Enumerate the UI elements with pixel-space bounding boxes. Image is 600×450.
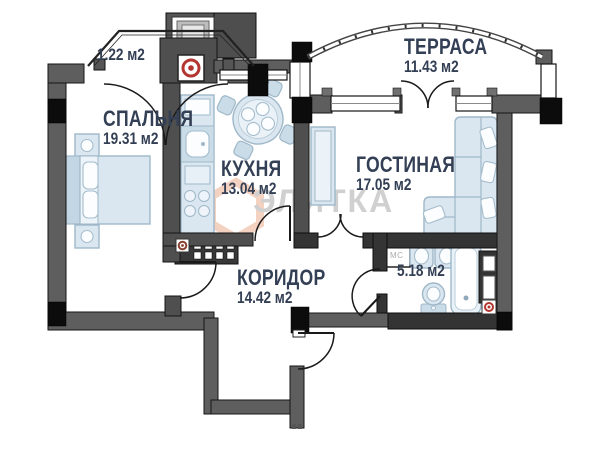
corner-block xyxy=(292,42,312,62)
door-post xyxy=(223,59,234,70)
terrace-door-arc xyxy=(428,81,454,108)
corridor-area: 14.42 м2 xyxy=(237,289,325,307)
bathtub xyxy=(451,243,481,315)
window-tab xyxy=(393,88,401,96)
corner-block xyxy=(48,302,66,326)
vent-icon xyxy=(178,55,204,81)
floor-plan-page: ЭЛИТКА xyxy=(0,0,600,450)
bedroom-name: СПАЛЬНЯ xyxy=(103,108,193,129)
entrance-door-arc xyxy=(298,333,334,369)
corner-block xyxy=(48,99,66,123)
wall-vestibule-east xyxy=(290,366,304,428)
kitchen-area: 13.04 м2 xyxy=(221,180,281,198)
floor-plan-drawing: ЭЛИТКА xyxy=(0,0,600,450)
terrace-label: ТЕРРАСА 11.43 м2 xyxy=(404,36,487,76)
balcony-label: 1.22 м2 xyxy=(97,45,145,64)
wall xyxy=(48,64,84,83)
nightstand-bottom xyxy=(75,225,99,248)
kitchen-name: КУХНЯ xyxy=(221,158,281,179)
wall-vestibule-south xyxy=(211,400,301,414)
terrace-door-arc xyxy=(401,81,428,108)
terrace-area: 11.43 м2 xyxy=(404,58,487,76)
window-tab xyxy=(487,88,497,96)
terrace-name: ТЕРРАСА xyxy=(404,36,487,57)
balcony-area: 1.22 м2 xyxy=(97,46,145,64)
bath-door-arc xyxy=(352,269,380,316)
entrance-threshold xyxy=(292,424,296,429)
corridor-name: КОРИДОР xyxy=(237,267,325,288)
towel-rail xyxy=(479,251,499,303)
window-tab xyxy=(322,88,332,96)
living-name: ГОСТИНАЯ xyxy=(356,154,455,175)
wall xyxy=(492,95,543,113)
sofa-pillow xyxy=(480,197,496,219)
wall-bath-west xyxy=(373,233,387,271)
nightstand-top xyxy=(75,134,99,157)
kitchen-label: КУХНЯ 13.04 м2 xyxy=(221,158,281,198)
pillow xyxy=(83,191,98,218)
wall-bath-bottom xyxy=(388,313,512,329)
bathroom-label: 5.18 м2 xyxy=(397,261,445,280)
entrance-threshold xyxy=(298,424,302,429)
bed xyxy=(66,156,150,224)
corridor-label: КОРИДОР 14.42 м2 xyxy=(237,267,325,307)
wall xyxy=(165,296,181,316)
vent-icon xyxy=(482,300,496,314)
bathroom-area: 5.18 м2 xyxy=(397,262,445,280)
entrance-pier xyxy=(291,307,309,333)
corner-block xyxy=(497,312,512,330)
window-tab xyxy=(452,88,460,96)
corner-block xyxy=(292,97,312,123)
window xyxy=(541,64,556,98)
wardrobe xyxy=(311,127,335,205)
pillow xyxy=(83,162,98,189)
washing-machine-label: МС xyxy=(390,251,403,260)
bedroom-door-arc xyxy=(180,262,216,298)
toilet xyxy=(421,283,446,316)
vent-icon xyxy=(176,239,189,252)
bedroom-label: СПАЛЬНЯ 19.31 м2 xyxy=(103,108,193,148)
living-label: ГОСТИНАЯ 17.05 м2 xyxy=(356,154,455,194)
living-area: 17.05 м2 xyxy=(356,176,455,194)
wall-bottom xyxy=(48,312,214,330)
corner-block xyxy=(248,64,268,96)
bedroom-area: 19.31 м2 xyxy=(103,130,193,148)
wall xyxy=(294,233,318,248)
wall-right xyxy=(497,112,512,330)
corner-block xyxy=(540,98,562,124)
